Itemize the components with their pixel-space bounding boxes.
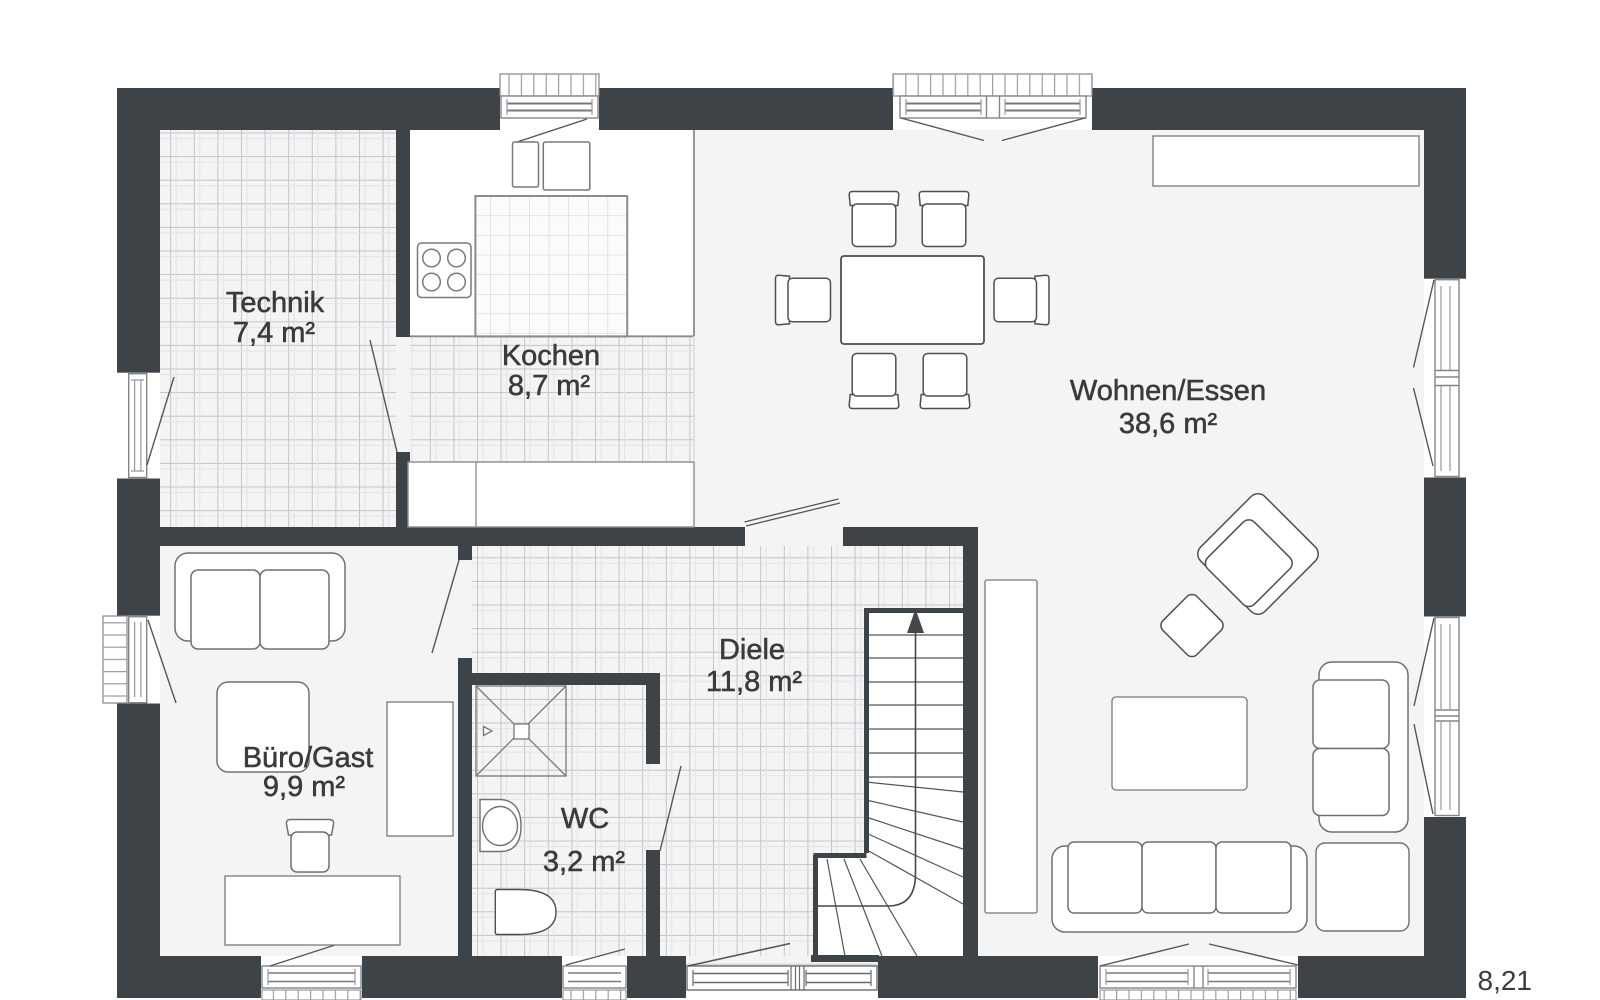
svg-text:8,7 m²: 8,7 m² bbox=[508, 370, 591, 402]
svg-text:8,21: 8,21 bbox=[1478, 965, 1533, 996]
svg-text:11,8 m²: 11,8 m² bbox=[706, 666, 803, 698]
svg-text:9,9 m²: 9,9 m² bbox=[263, 771, 346, 803]
svg-text:Technik: Technik bbox=[226, 287, 325, 319]
svg-text:38,6 m²: 38,6 m² bbox=[1119, 408, 1218, 440]
svg-text:Wohnen/Essen: Wohnen/Essen bbox=[1070, 375, 1266, 407]
svg-text:Diele: Diele bbox=[719, 634, 785, 666]
svg-text:Büro/Gast: Büro/Gast bbox=[243, 742, 374, 774]
svg-text:Kochen: Kochen bbox=[502, 340, 600, 372]
svg-text:WC: WC bbox=[561, 803, 609, 835]
svg-text:7,4 m²: 7,4 m² bbox=[233, 317, 316, 349]
svg-text:3,2 m²: 3,2 m² bbox=[543, 846, 626, 878]
